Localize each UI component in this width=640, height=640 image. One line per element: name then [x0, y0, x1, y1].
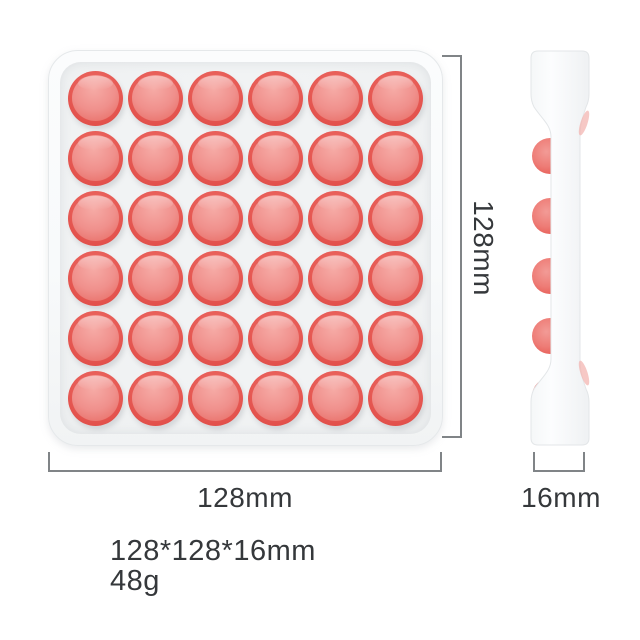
bubble — [248, 371, 303, 426]
bubble — [308, 71, 363, 126]
bubble — [128, 131, 183, 186]
bubble — [368, 371, 423, 426]
bubble — [68, 71, 123, 126]
product-front-view — [48, 50, 443, 446]
bubble — [248, 311, 303, 366]
bubble — [128, 191, 183, 246]
bubble — [308, 311, 363, 366]
depth-dimension-bracket — [533, 452, 585, 472]
bubble — [248, 191, 303, 246]
bubble — [368, 251, 423, 306]
bubble — [68, 251, 123, 306]
bubble — [368, 191, 423, 246]
bubble — [188, 71, 243, 126]
width-dimension-label: 128mm — [145, 482, 345, 514]
bubble — [248, 131, 303, 186]
bubble — [368, 131, 423, 186]
bubble — [128, 311, 183, 366]
height-dimension-bracket — [442, 55, 462, 438]
bubble-grid — [68, 71, 423, 426]
product-side-view — [528, 47, 592, 449]
side-view-body — [531, 51, 589, 445]
bubble — [188, 131, 243, 186]
width-dimension-bracket — [48, 452, 442, 472]
bubble — [68, 131, 123, 186]
specs-text: 128*128*16mm 48g — [110, 536, 316, 596]
bubble — [128, 371, 183, 426]
specs-weight-line: 48g — [110, 566, 316, 596]
bubble — [308, 371, 363, 426]
product-dimension-diagram: 128mm 128mm 16mm 128*128*16mm 48g — [0, 0, 640, 640]
bubble — [368, 71, 423, 126]
depth-dimension-label: 16mm — [481, 482, 640, 514]
bubble — [308, 131, 363, 186]
specs-size-line: 128*128*16mm — [110, 536, 316, 566]
bubble — [248, 71, 303, 126]
bubble — [68, 371, 123, 426]
height-dimension-label: 128mm — [468, 188, 498, 308]
bubble — [68, 311, 123, 366]
bubble — [188, 311, 243, 366]
bubble — [68, 191, 123, 246]
bubble — [128, 251, 183, 306]
bubble — [188, 191, 243, 246]
bubble — [188, 251, 243, 306]
bubble — [248, 251, 303, 306]
bubble — [128, 71, 183, 126]
bubble — [188, 371, 243, 426]
bubble — [308, 191, 363, 246]
bubble — [308, 251, 363, 306]
bubble — [368, 311, 423, 366]
